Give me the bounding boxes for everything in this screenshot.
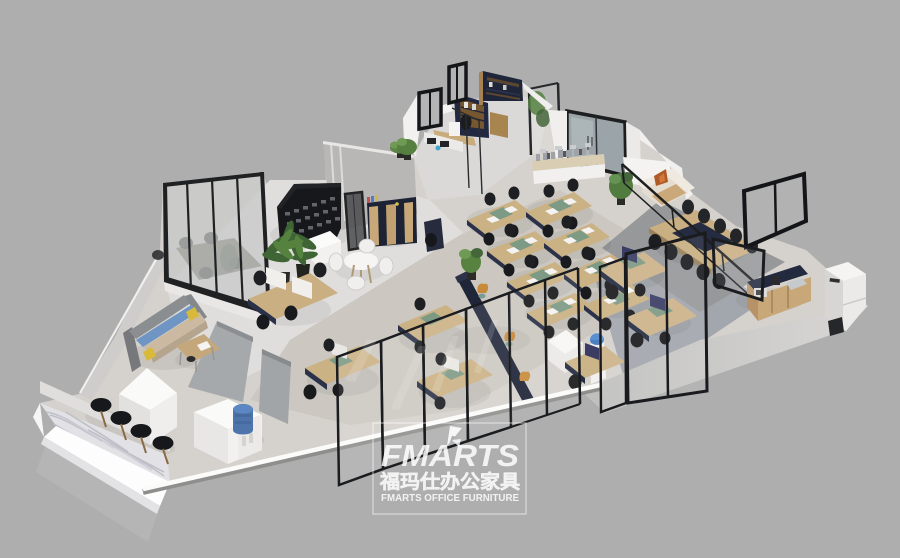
- svg-text:FMARTS OFFICE FURNITURE: FMARTS OFFICE FURNITURE: [381, 492, 519, 504]
- svg-text:福玛仕办公家具: 福玛仕办公家具: [379, 470, 520, 493]
- svg-text:FMARTS: FMARTS: [381, 438, 519, 473]
